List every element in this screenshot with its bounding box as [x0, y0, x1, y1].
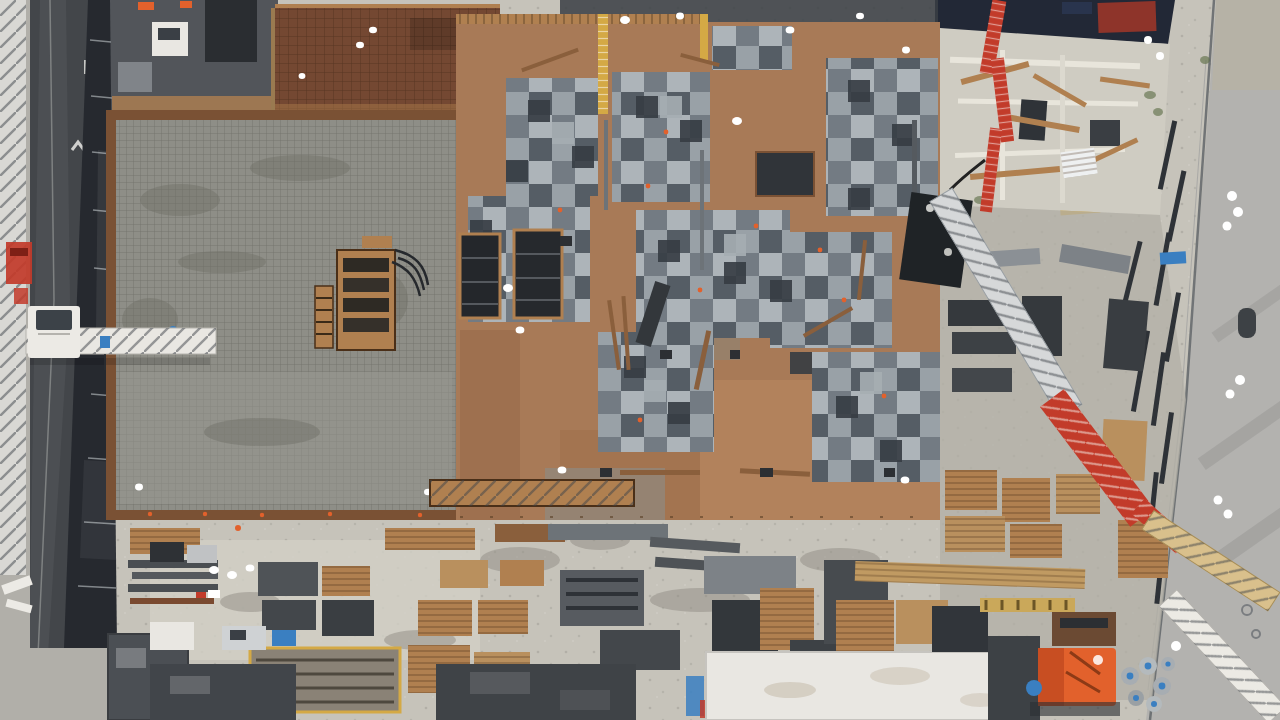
yellow-flatbed	[980, 598, 1075, 612]
worker	[369, 27, 377, 33]
worker	[299, 73, 306, 79]
yellow-guardrail	[700, 14, 708, 60]
aerial-photo-canvas	[0, 0, 1280, 720]
panel-patch	[712, 26, 792, 70]
panel-patch	[812, 352, 940, 482]
white-van	[150, 622, 194, 650]
drum	[1238, 308, 1256, 338]
traffic-cone	[235, 525, 241, 531]
upper-structure	[940, 28, 1170, 215]
timber-truss-walkway	[430, 480, 634, 506]
blue-beam	[1160, 251, 1187, 264]
parked-car	[187, 545, 217, 563]
blue-bin	[272, 630, 296, 646]
site-offices-top	[110, 0, 278, 118]
scene-root	[0, 0, 1280, 720]
white-trailer	[706, 652, 1016, 720]
parked-car	[150, 542, 184, 562]
worker	[356, 42, 364, 48]
crane-trolley	[100, 336, 110, 348]
concrete-slab	[106, 110, 464, 520]
blue-barrel	[1026, 680, 1042, 696]
crane-cab	[28, 306, 80, 358]
